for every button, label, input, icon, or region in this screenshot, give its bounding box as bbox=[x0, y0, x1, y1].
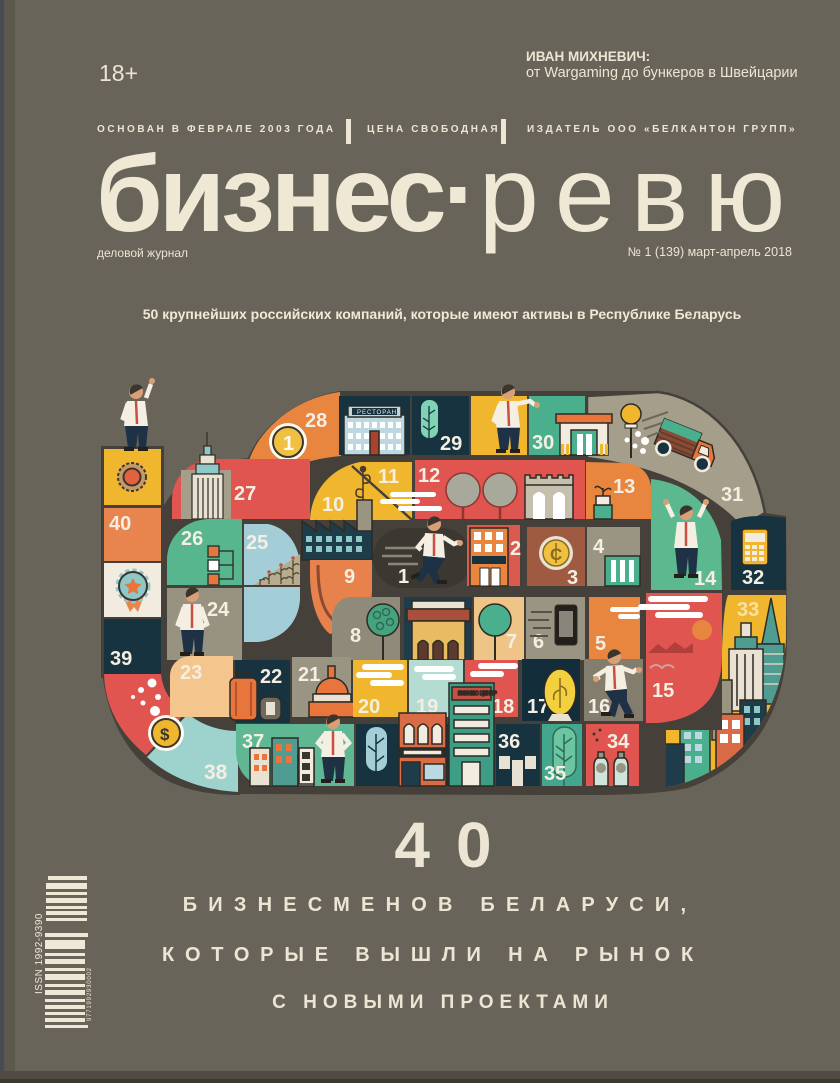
svg-text:18: 18 bbox=[492, 696, 514, 718]
svg-text:7: 7 bbox=[506, 631, 517, 653]
svg-text:$: $ bbox=[160, 725, 170, 744]
svg-text:22: 22 bbox=[260, 666, 282, 688]
svg-text:21: 21 bbox=[298, 664, 320, 686]
svg-text:30: 30 bbox=[532, 432, 554, 454]
svg-text:5: 5 bbox=[595, 633, 606, 655]
svg-text:40: 40 bbox=[109, 513, 131, 535]
svg-text:38: 38 bbox=[204, 761, 228, 784]
svg-text:11: 11 bbox=[378, 466, 399, 488]
svg-text:31: 31 bbox=[721, 484, 743, 506]
svg-text:33: 33 bbox=[737, 599, 759, 621]
svg-text:2: 2 bbox=[510, 538, 521, 560]
svg-text:28: 28 bbox=[305, 410, 327, 432]
svg-text:РЕСТОРАН: РЕСТОРАН bbox=[357, 410, 397, 416]
svg-text:12: 12 bbox=[418, 465, 440, 487]
svg-text:9771992930002: 9771992930002 bbox=[87, 967, 93, 1021]
svg-text:27: 27 bbox=[234, 483, 256, 505]
svg-text:6: 6 bbox=[533, 631, 544, 653]
svg-text:25: 25 bbox=[246, 532, 268, 554]
svg-text:36: 36 bbox=[498, 731, 520, 753]
svg-text:14: 14 bbox=[694, 568, 717, 590]
svg-text:34: 34 bbox=[607, 731, 630, 753]
svg-text:32: 32 bbox=[742, 567, 764, 589]
svg-text:10: 10 bbox=[322, 494, 344, 516]
svg-text:39: 39 bbox=[110, 648, 132, 670]
svg-text:20: 20 bbox=[358, 696, 380, 718]
svg-text:23: 23 bbox=[180, 662, 202, 684]
svg-text:1: 1 bbox=[398, 566, 409, 588]
svg-text:ISSN 1992-9390: ISSN 1992-9390 bbox=[34, 913, 45, 994]
svg-text:26: 26 bbox=[181, 528, 203, 550]
svg-text:БИЗНЕС ЦЕНТР: БИЗНЕС ЦЕНТР bbox=[458, 691, 498, 697]
svg-text:35: 35 bbox=[544, 763, 566, 785]
svg-text:24: 24 bbox=[207, 599, 230, 621]
svg-text:1: 1 bbox=[283, 433, 294, 455]
svg-text:3: 3 bbox=[567, 567, 578, 589]
svg-text:29: 29 bbox=[440, 433, 462, 455]
svg-text:13: 13 bbox=[613, 476, 635, 498]
svg-text:8: 8 bbox=[350, 625, 361, 647]
svg-text:9: 9 bbox=[344, 566, 355, 588]
svg-text:15: 15 bbox=[652, 680, 674, 702]
svg-text:4: 4 bbox=[593, 536, 605, 558]
